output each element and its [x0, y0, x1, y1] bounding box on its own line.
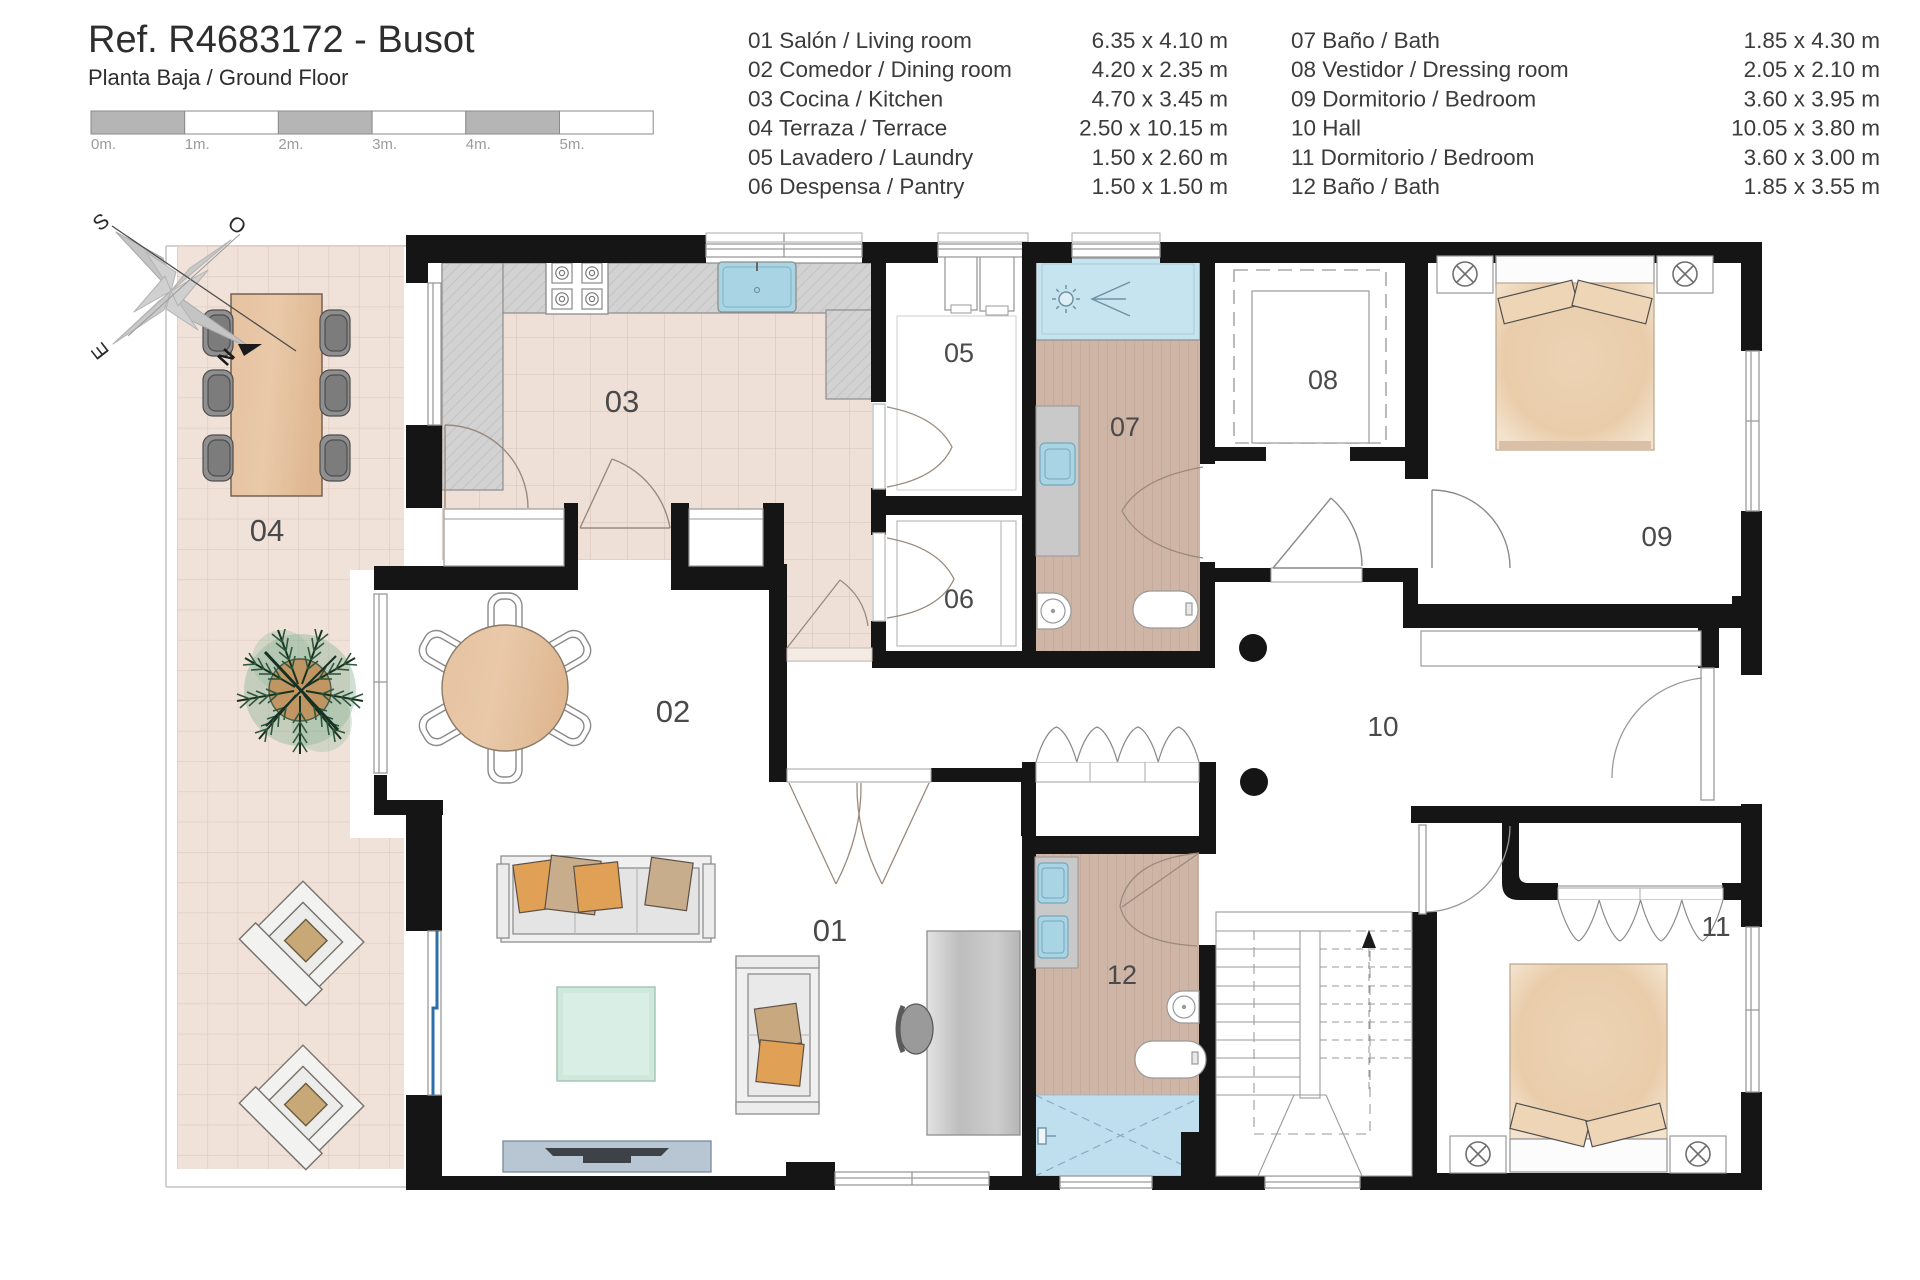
- svg-text:11 Dormitorio / Bedroom: 11 Dormitorio / Bedroom: [1291, 145, 1534, 170]
- svg-text:1.50 x 1.50 m: 1.50 x 1.50 m: [1092, 174, 1228, 199]
- svg-text:1.85 x 4.30 m: 1.85 x 4.30 m: [1744, 28, 1880, 53]
- svg-text:01 Salón / Living room: 01 Salón / Living room: [748, 28, 972, 53]
- svg-text:09 Dormitorio / Bedroom: 09 Dormitorio / Bedroom: [1291, 86, 1536, 111]
- svg-text:4m.: 4m.: [466, 136, 491, 153]
- svg-text:4.70 x 3.45 m: 4.70 x 3.45 m: [1092, 86, 1228, 111]
- svg-text:07 Baño / Bath: 07 Baño / Bath: [1291, 28, 1440, 53]
- svg-text:E: E: [87, 338, 114, 363]
- svg-text:2.50 x 10.15 m: 2.50 x 10.15 m: [1079, 116, 1228, 141]
- svg-text:Planta Baja / Ground Floor: Planta Baja / Ground Floor: [88, 65, 348, 90]
- svg-text:10 Hall: 10 Hall: [1291, 116, 1361, 141]
- svg-text:S: S: [89, 209, 114, 236]
- svg-text:O: O: [223, 211, 250, 239]
- svg-text:01: 01: [813, 913, 847, 948]
- svg-text:12 Baño / Bath: 12 Baño / Bath: [1291, 174, 1440, 199]
- svg-text:09: 09: [1641, 521, 1672, 552]
- svg-text:5m.: 5m.: [560, 136, 585, 153]
- svg-text:07: 07: [1110, 412, 1140, 442]
- svg-text:10.05 x 3.80 m: 10.05 x 3.80 m: [1731, 116, 1880, 141]
- svg-text:04 Terraza / Terrace: 04 Terraza / Terrace: [748, 116, 947, 141]
- svg-text:05: 05: [944, 338, 974, 368]
- svg-text:11: 11: [1701, 911, 1730, 942]
- svg-text:05 Lavadero / Laundry: 05 Lavadero / Laundry: [748, 145, 974, 170]
- svg-text:02: 02: [656, 694, 690, 729]
- svg-text:02 Comedor / Dining room: 02 Comedor / Dining room: [748, 57, 1012, 82]
- svg-text:4.20 x 2.35 m: 4.20 x 2.35 m: [1092, 57, 1228, 82]
- svg-text:1.85 x 3.55 m: 1.85 x 3.55 m: [1744, 174, 1880, 199]
- svg-text:03: 03: [605, 384, 639, 419]
- svg-text:06 Despensa / Pantry: 06 Despensa / Pantry: [748, 174, 965, 199]
- svg-text:12: 12: [1107, 960, 1137, 990]
- svg-text:10: 10: [1367, 711, 1398, 742]
- svg-text:3m.: 3m.: [372, 136, 397, 153]
- svg-text:2.05 x 2.10 m: 2.05 x 2.10 m: [1744, 57, 1880, 82]
- svg-text:6.35 x 4.10 m: 6.35 x 4.10 m: [1092, 28, 1228, 53]
- svg-text:2m.: 2m.: [278, 136, 303, 153]
- svg-text:1m.: 1m.: [185, 136, 210, 153]
- svg-text:08 Vestidor / Dressing room: 08 Vestidor / Dressing room: [1291, 57, 1569, 82]
- svg-text:0m.: 0m.: [91, 136, 116, 153]
- svg-text:08: 08: [1308, 365, 1338, 395]
- svg-text:3.60 x 3.00 m: 3.60 x 3.00 m: [1744, 145, 1880, 170]
- svg-text:06: 06: [944, 584, 974, 614]
- svg-text:3.60 x 3.95 m: 3.60 x 3.95 m: [1744, 86, 1880, 111]
- svg-text:04: 04: [250, 513, 284, 548]
- svg-text:03 Cocina / Kitchen: 03 Cocina / Kitchen: [748, 86, 943, 111]
- svg-text:Ref. R4683172 - Busot: Ref. R4683172 - Busot: [88, 19, 475, 61]
- svg-text:1.50 x 2.60 m: 1.50 x 2.60 m: [1092, 145, 1228, 170]
